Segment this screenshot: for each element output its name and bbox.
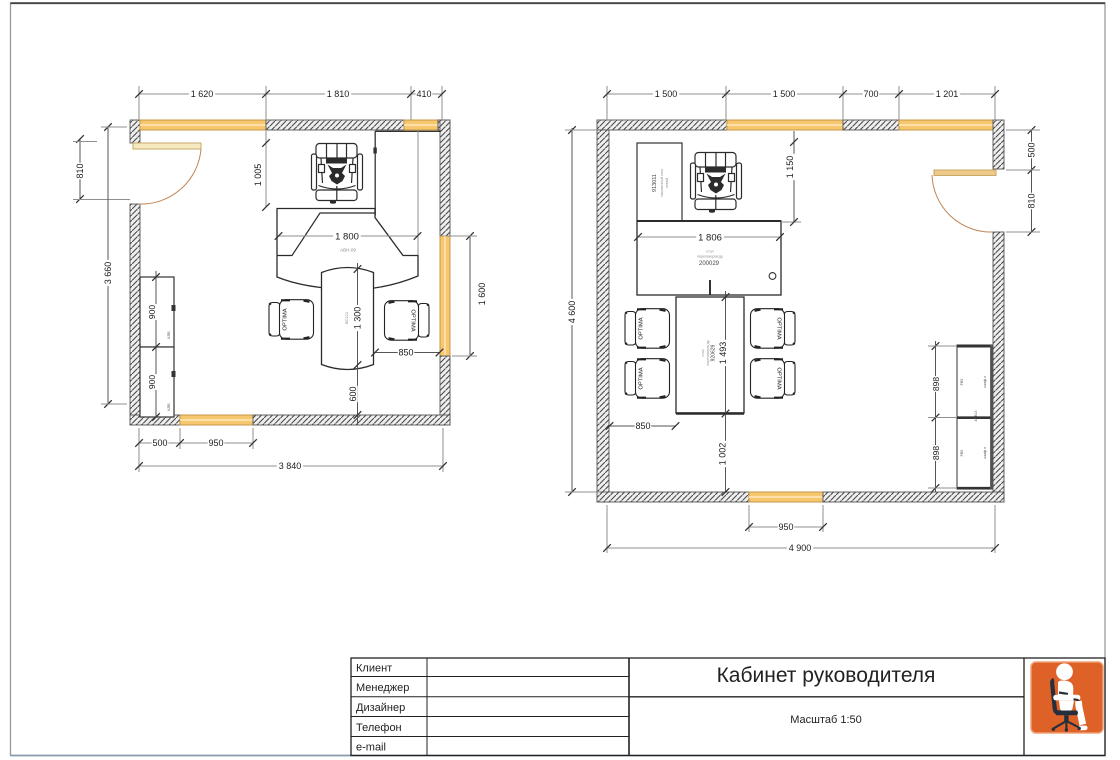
svg-text:1 600: 1 600	[477, 283, 487, 306]
svg-text:810: 810	[1027, 193, 1037, 208]
svg-text:переговоров др: переговоров др	[706, 340, 710, 365]
svg-text:4 900: 4 900	[789, 543, 812, 553]
svg-text:Менеджер: Менеджер	[356, 682, 409, 694]
svg-text:КЛБ: КЛБ	[166, 331, 171, 339]
svg-text:e-mail: e-mail	[356, 741, 386, 753]
svg-text:стол: стол	[706, 249, 713, 253]
svg-text:OPTIMA: OPTIMA	[776, 317, 782, 339]
svg-text:РВ5: РВ5	[960, 450, 964, 457]
svg-text:898: 898	[931, 446, 941, 460]
svg-text:переговоров др: переговоров др	[697, 254, 722, 258]
svg-text:3 840: 3 840	[279, 461, 302, 471]
svg-text:РВ5: РВ5	[960, 379, 964, 386]
svg-text:850: 850	[398, 348, 413, 358]
svg-text:500: 500	[152, 438, 167, 448]
svg-text:1 500: 1 500	[655, 89, 678, 99]
svg-text:898: 898	[931, 377, 941, 391]
svg-text:КЛБ: КЛБ	[166, 403, 171, 411]
svg-text:913011: 913011	[652, 174, 658, 192]
svg-text:4 600: 4 600	[567, 301, 577, 324]
svg-text:ВС121: ВС121	[344, 311, 349, 324]
svg-text:900: 900	[147, 375, 157, 389]
svg-text:1 806: 1 806	[698, 232, 722, 243]
svg-text:шкаф о: шкаф о	[983, 376, 987, 388]
svg-text:410: 410	[416, 89, 431, 99]
svg-text:OPTIMA: OPTIMA	[639, 317, 645, 339]
svg-text:850: 850	[635, 421, 650, 431]
svg-text:500: 500	[1027, 142, 1037, 157]
svg-text:900: 900	[147, 305, 157, 319]
svg-text:1 800: 1 800	[335, 231, 359, 242]
svg-text:OPTIMA: OPTIMA	[410, 309, 416, 331]
svg-text:шкаф о: шкаф о	[983, 447, 987, 459]
svg-text:920629: 920629	[711, 344, 717, 361]
svg-text:стол: стол	[701, 349, 705, 356]
svg-text:OPTIMA: OPTIMA	[776, 367, 782, 389]
svg-text:1 005: 1 005	[253, 164, 263, 187]
svg-text:Масштаб 1:50: Масштаб 1:50	[790, 714, 862, 726]
svg-text:Телефон: Телефон	[356, 722, 402, 734]
svg-text:700: 700	[863, 89, 878, 99]
svg-text:левый: левый	[665, 178, 669, 188]
svg-text:950: 950	[778, 522, 793, 532]
svg-text:1 300: 1 300	[353, 307, 363, 330]
svg-text:1 201: 1 201	[936, 89, 959, 99]
svg-text:АВН-09: АВН-09	[340, 248, 356, 253]
svg-text:3 660: 3 660	[103, 262, 113, 285]
svg-text:письменный стол: письменный стол	[660, 169, 664, 197]
svg-text:1 620: 1 620	[191, 89, 214, 99]
svg-text:OPTIMA: OPTIMA	[283, 308, 289, 330]
svg-text:Дизайнер: Дизайнер	[356, 702, 405, 714]
svg-text:1 810: 1 810	[327, 89, 350, 99]
svg-text:1 493: 1 493	[718, 342, 728, 365]
svg-text:810: 810	[75, 163, 85, 178]
svg-text:АРВ13: АРВ13	[974, 411, 978, 422]
svg-text:1 150: 1 150	[785, 156, 795, 179]
svg-text:600: 600	[348, 386, 358, 401]
svg-text:Кабинет руководителя: Кабинет руководителя	[717, 664, 936, 687]
svg-text:950: 950	[208, 438, 223, 448]
svg-text:Клиент: Клиент	[356, 662, 392, 674]
svg-text:OPTIMA: OPTIMA	[639, 367, 645, 389]
svg-text:200029: 200029	[699, 261, 720, 267]
svg-text:1 002: 1 002	[718, 443, 728, 466]
svg-text:1 500: 1 500	[773, 89, 796, 99]
